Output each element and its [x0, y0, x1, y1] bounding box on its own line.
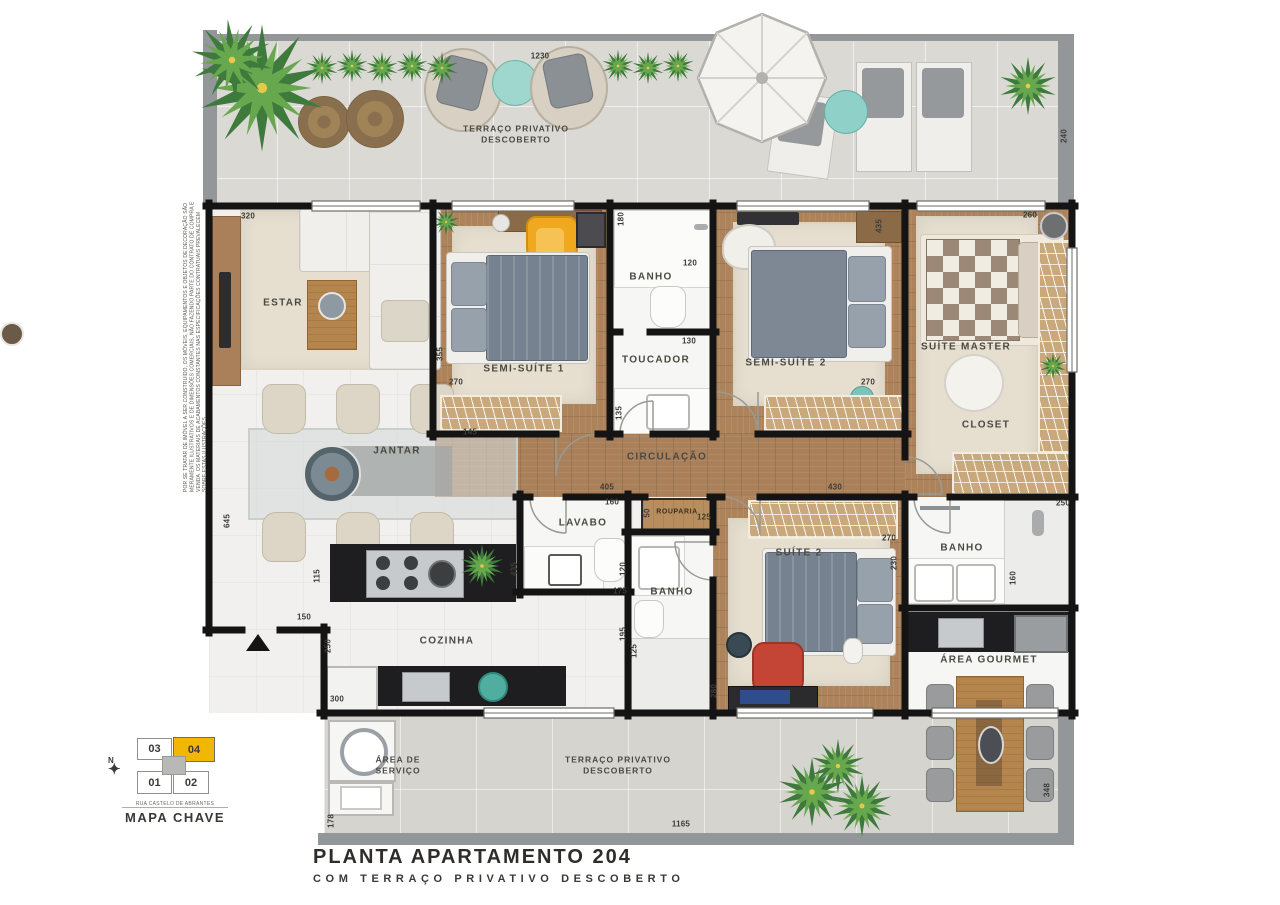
sink-lavabo [548, 554, 582, 586]
gourmet-chair [1026, 684, 1054, 718]
bed-master-duvet [926, 239, 1020, 341]
room-label-banho3: BANHO [940, 543, 983, 554]
dimension-label: 150 [297, 613, 311, 622]
shower-banho2 [631, 638, 713, 712]
gourmet-sink [938, 618, 984, 648]
dimension-label: 120 [619, 562, 628, 576]
toilet-banho2 [634, 600, 664, 638]
room-label-suite-master: SUÍTE MASTER [921, 342, 1011, 353]
pouf-rattan-2 [346, 90, 404, 148]
dimension-label: 280 [710, 684, 719, 698]
dimension-label: 320 [241, 212, 255, 221]
room-label-lavabo: LAVABO [559, 518, 608, 529]
dimension-label: 115 [313, 569, 322, 583]
dimension-label: 300 [330, 695, 344, 704]
dimension-label: 175 [613, 587, 627, 596]
room-label-toucador: TOUCADOR [622, 355, 690, 366]
gourmet-centerpiece [978, 726, 1004, 764]
desk-mat-blue [740, 690, 790, 704]
coffee-table-decor [318, 292, 346, 320]
room-label-closet: CLOSET [962, 420, 1010, 431]
bed-ss1-pillow [451, 308, 487, 352]
art-frame-ss1 [576, 212, 606, 248]
dimension-label: 405 [600, 483, 614, 492]
dimension-label: 270 [882, 534, 896, 543]
dimension-label: 50 [643, 508, 652, 517]
title-block: PLANTA APARTAMENTO 204 COM TERRAÇO PRIVA… [313, 846, 685, 885]
gourmet-grill [1014, 615, 1068, 653]
terrace-wall-left [203, 30, 217, 206]
closet-master-side [1038, 240, 1074, 476]
kitchen-bowl-teal [478, 672, 508, 702]
north-arrow-icon: N✦ [108, 756, 121, 775]
dining-chair [262, 384, 306, 434]
terrace-wall-top [203, 34, 1074, 41]
legal-disclaimer: POR SE TRATAR DE IMÓVEL A SER CONSTRUÍDO… [183, 198, 204, 492]
room-label-semi-suite2: SEMI-SUÍTE 2 [745, 358, 826, 369]
dimension-label: 145 [463, 428, 477, 437]
room-label-circulacao: CIRCULAÇÃO [627, 452, 707, 463]
dimension-label: 355 [436, 347, 445, 361]
towel-bar-banho3 [920, 506, 960, 510]
keymap-rule [122, 807, 228, 808]
dimension-label: 240 [1060, 129, 1069, 143]
dimension-label: 435 [510, 562, 519, 576]
dining-chair [336, 384, 380, 434]
keymap-street-label: RUA CASTELO DE ABRANTES [136, 801, 214, 807]
bed-ss2-duvet [751, 250, 847, 358]
plan-title: PLANTA APARTAMENTO 204 [313, 846, 685, 869]
entry-arrow [246, 634, 270, 651]
sunbed-1-pad [777, 97, 827, 147]
dimension-label: 1230 [531, 52, 550, 61]
room-label-banho1: BANHO [629, 272, 672, 283]
dimension-label: 160 [605, 498, 619, 507]
burner [376, 576, 390, 590]
room-label-area-gourmet: ÁREA GOURMET [940, 655, 1037, 666]
dimension-label: 260 [1023, 211, 1037, 220]
dimension-label: 270 [861, 378, 875, 387]
dining-chair [262, 512, 306, 562]
dimension-label: 435 [875, 219, 884, 233]
terrace-top-label: TERRAÇO PRIVATIVODESCOBERTO [463, 124, 569, 147]
bed-suite2-duvet [765, 552, 857, 652]
bed-suite2-pillow [857, 558, 893, 602]
sunbed-3-pad [922, 68, 964, 118]
nightstand-lamp-master [1040, 212, 1068, 240]
burner [404, 556, 418, 570]
room-label-cozinha: COZINHA [420, 636, 475, 647]
bed-suite2-pillow [857, 604, 893, 644]
dimension-label: 348 [1043, 783, 1052, 797]
chair-master [944, 354, 1004, 412]
dimension-label: 135 [615, 406, 624, 420]
bed-ss1-pillow [451, 262, 487, 306]
dimension-label: 120 [683, 259, 697, 268]
terrace-wall-right-bottom [1058, 713, 1074, 845]
dimension-label: 178 [327, 814, 336, 828]
dimension-label: 130 [682, 337, 696, 346]
terrace-wall-right-top [1058, 34, 1074, 206]
dimension-label: 430 [828, 483, 842, 492]
gourmet-chair [1026, 726, 1054, 760]
bed-ss2-pillow [848, 256, 886, 302]
wardrobe-suite2 [748, 500, 898, 539]
dimension-label: 180 [617, 212, 626, 226]
dimension-label: 270 [449, 378, 463, 387]
plan-subtitle: COM TERRAÇO PRIVATIVO DESCOBERTO [313, 873, 685, 885]
stool-suite2 [726, 632, 752, 658]
terrace-bottom-label: TERRAÇO PRIVATIVODESCOBERTO [565, 755, 671, 778]
deco-suite2 [843, 638, 863, 664]
gourmet-chair [926, 768, 954, 802]
sink-banho3 [956, 564, 996, 602]
dimension-label: 250 [324, 639, 333, 653]
floor-plan-page: TERRAÇO PRIVATIVODESCOBERTO ESTAR JANTAR… [0, 0, 1280, 905]
side-table-teal-2 [824, 90, 868, 134]
shower-head-banho1 [694, 224, 708, 230]
sink-banho2 [638, 546, 680, 590]
gourmet-chair [926, 684, 954, 718]
room-label-suite2: SUÍTE 2 [776, 548, 823, 559]
deco-ball-ss1 [492, 214, 510, 232]
dimension-label: 1165 [672, 820, 690, 829]
bed-ss2-pillow [848, 304, 886, 348]
dimension-label: 230 [890, 556, 899, 570]
fridge [326, 666, 378, 712]
wardrobe-ss1 [440, 395, 562, 432]
room-label-area-servico: ÁREA DESERVIÇO [375, 755, 420, 778]
dimension-label: 250 [1056, 499, 1070, 508]
dining-centerpiece [303, 445, 361, 503]
dimension-label: 125 [697, 513, 711, 522]
kitchen-sink [402, 672, 450, 702]
bed-ss1-duvet [486, 255, 588, 361]
dimension-label: 195 [619, 627, 628, 641]
dimension-label: 125 [630, 644, 639, 658]
room-label-estar: ESTAR [263, 298, 303, 309]
keymap-title: MAPA CHAVE [125, 810, 225, 825]
room-label-rouparia: ROUPARIA [656, 509, 698, 516]
terrace-wall-bottom [318, 833, 1074, 845]
burner [376, 556, 390, 570]
dimension-label: 160 [1009, 571, 1018, 585]
gourmet-chair [926, 726, 954, 760]
laundry-tank-basin [340, 786, 382, 810]
burner [404, 576, 418, 590]
pouf-rattan-1 [298, 96, 350, 148]
sofa-blanket [381, 300, 429, 342]
burner-large [428, 560, 456, 588]
wardrobe-ss2 [764, 395, 904, 432]
room-label-banho2: BANHO [650, 587, 693, 598]
sunbed-2-pad [862, 68, 904, 118]
coffee-table-tray [0, 322, 24, 346]
sofa-chaise [369, 208, 441, 370]
shower-head-banho3 [1032, 510, 1044, 536]
toilet-banho1 [650, 286, 686, 328]
room-label-semi-suite1: SEMI-SUÍTE 1 [483, 364, 564, 375]
dimension-label: 645 [223, 514, 232, 528]
room-label-jantar: JANTAR [373, 446, 421, 457]
tv [219, 272, 231, 348]
closet-master-bottom [952, 452, 1074, 496]
sink-toucador [646, 394, 690, 430]
keymap-core [162, 756, 186, 775]
sink-banho3 [914, 564, 954, 602]
